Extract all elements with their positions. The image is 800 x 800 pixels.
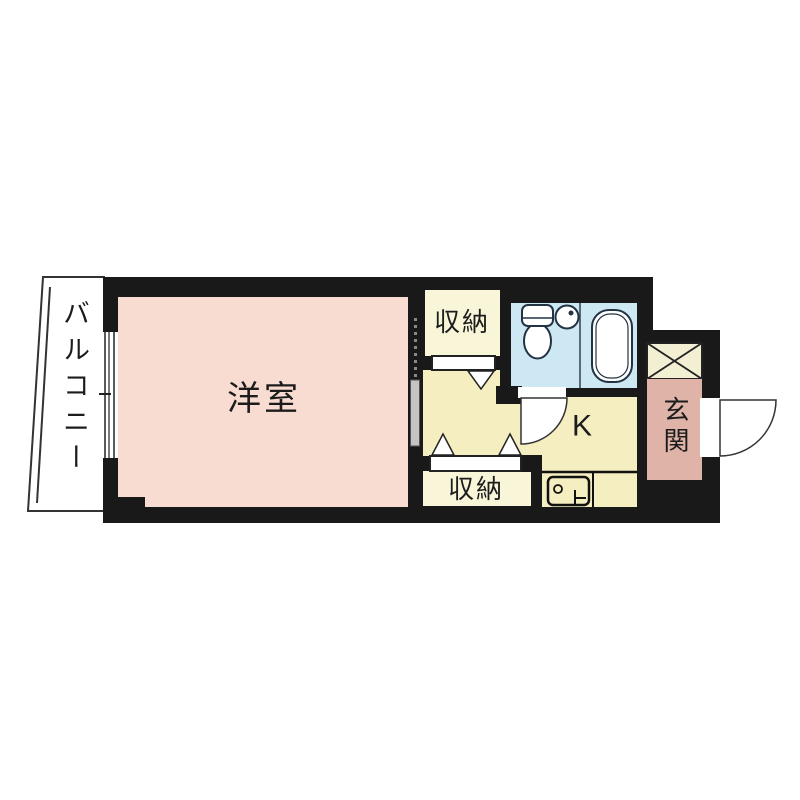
western-room-label: 洋室: [227, 380, 301, 418]
toilet-icon: [524, 324, 551, 359]
sliding-door-leaf: [411, 380, 420, 446]
bathroom-door-opening: [518, 387, 566, 398]
kitchen-label: K: [572, 410, 592, 443]
toilet-tank-icon: [522, 305, 553, 326]
entrance-label: 玄関: [660, 396, 690, 458]
entrance-door-opening: [700, 398, 720, 457]
wall-stub-counter-top: [521, 455, 542, 472]
hallway-floor: [423, 370, 500, 456]
storage-lower-door: [430, 456, 521, 471]
storage-upper-label: 収納: [434, 307, 490, 337]
floor-plan-canvas: バルコニー 洋室 収納 収納 K 玄関: [0, 0, 800, 800]
storage-lower-label: 収納: [448, 474, 504, 504]
storage-upper-door: [432, 356, 495, 370]
wall-stub-counter-side: [531, 472, 542, 507]
entrance-door-swing-icon: [720, 400, 776, 456]
balcony-label: バルコニー: [59, 299, 89, 479]
floor-plan: バルコニー 洋室 収納 収納 K 玄関: [0, 0, 800, 800]
washbasin-faucet-dot: [569, 311, 574, 316]
washbasin-icon: [556, 306, 579, 329]
